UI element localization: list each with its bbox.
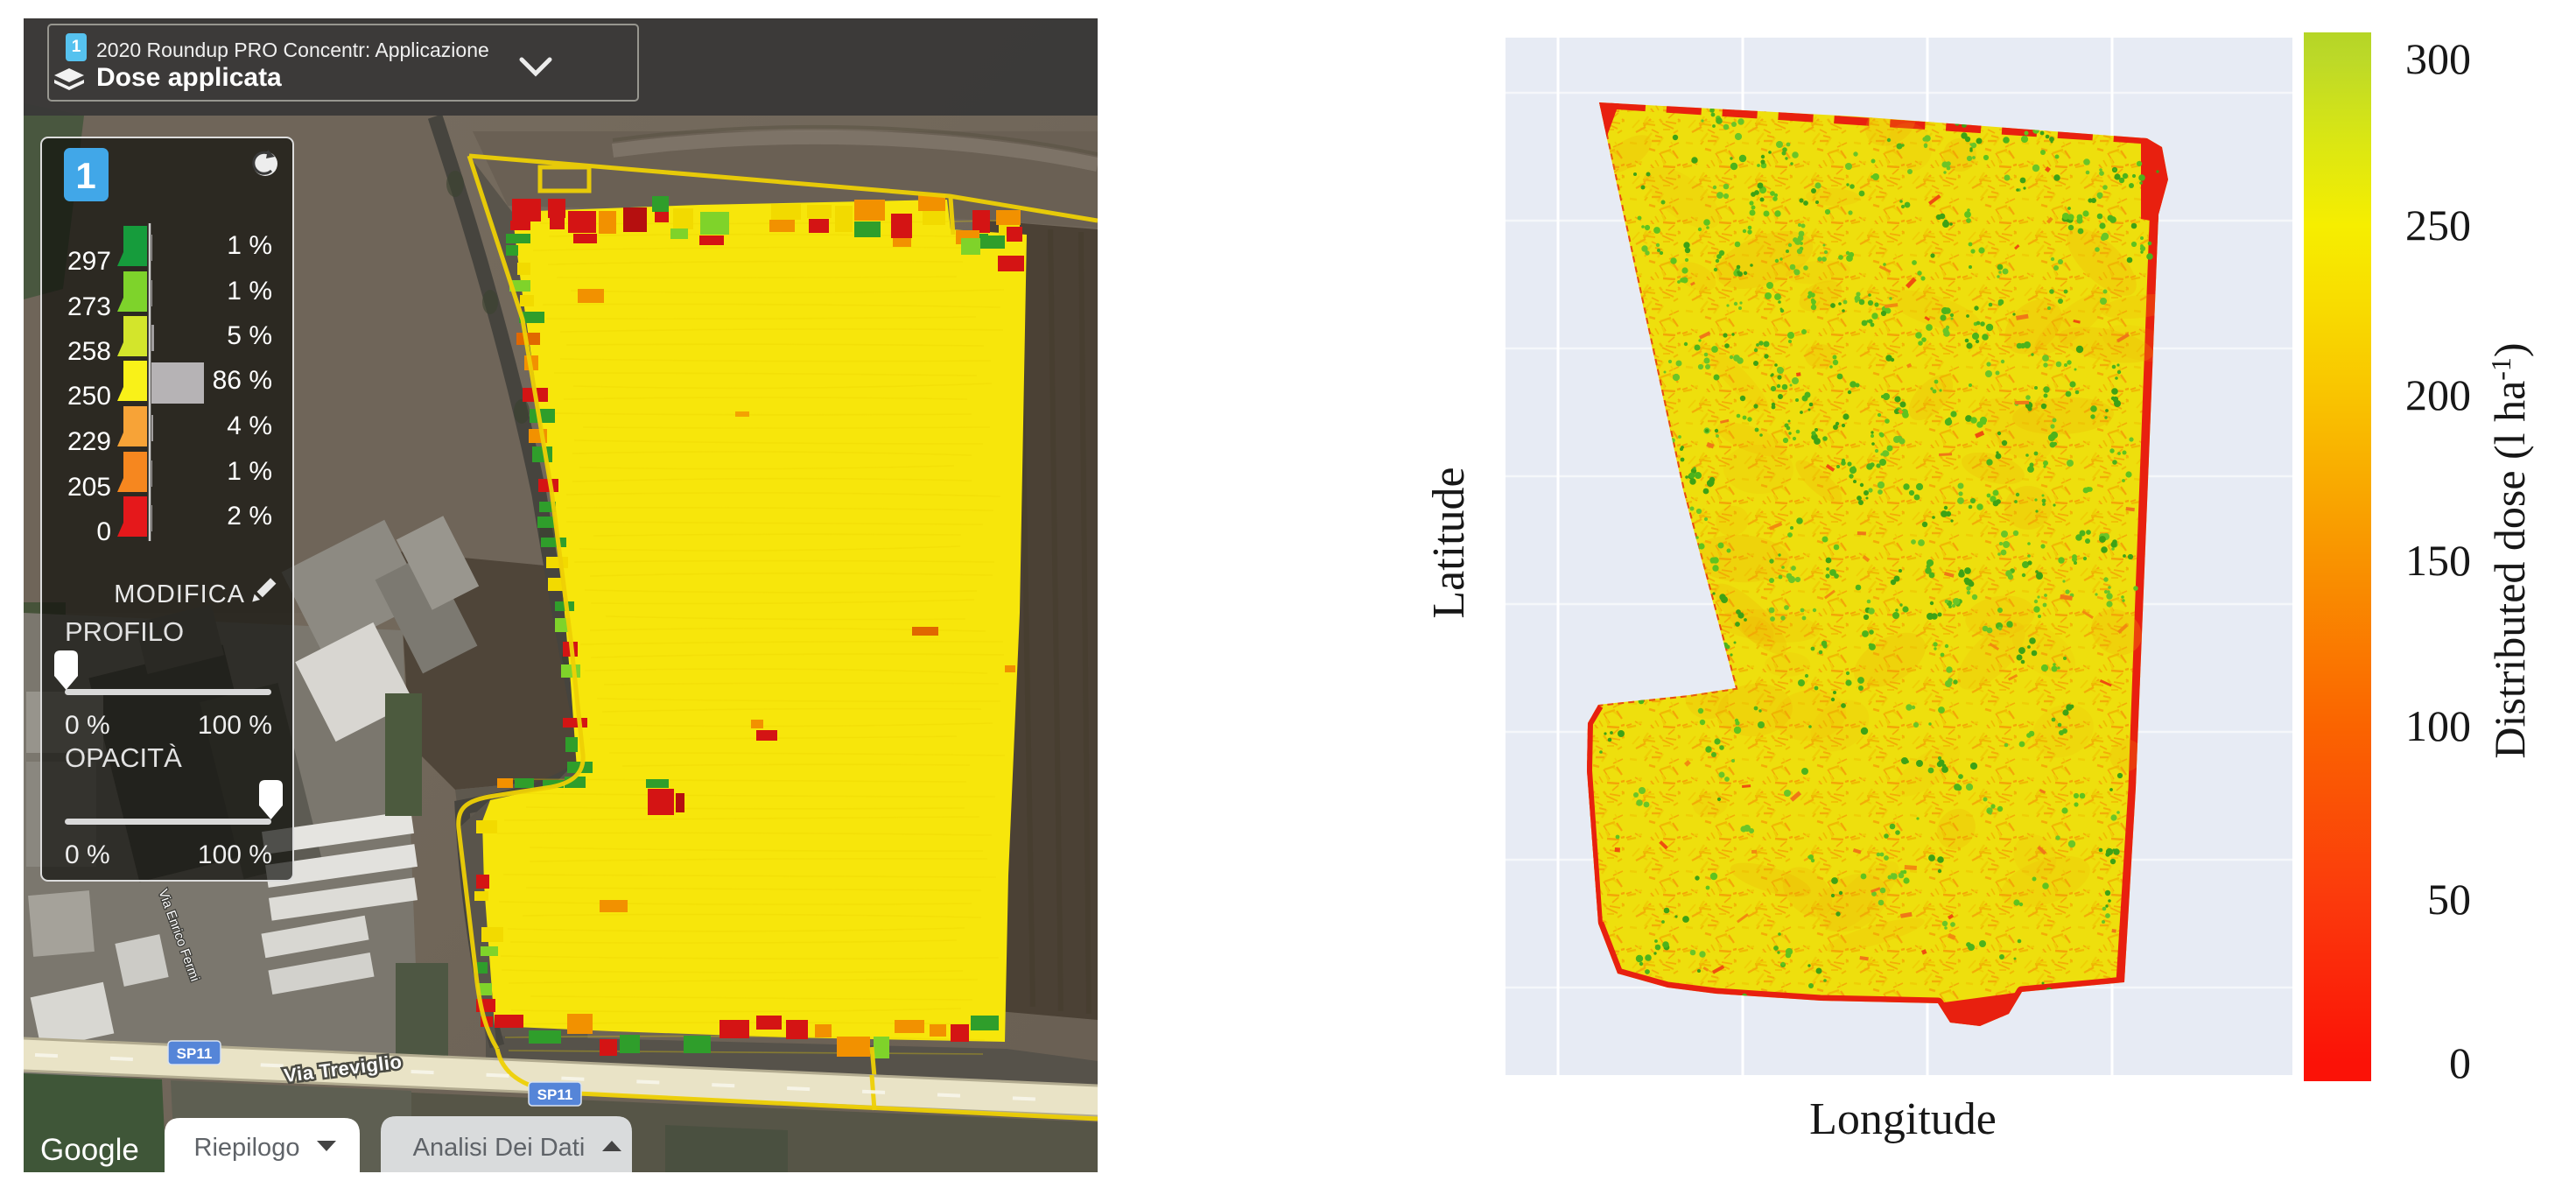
svg-text:Latitude: Latitude xyxy=(1424,467,1474,618)
svg-text:Distributed dose (l ha-1): Distributed dose (l ha-1) xyxy=(2485,342,2534,758)
svg-text:300: 300 xyxy=(2405,34,2471,83)
svg-text:150: 150 xyxy=(2405,536,2471,585)
svg-text:100: 100 xyxy=(2405,701,2471,750)
svg-text:50: 50 xyxy=(2427,875,2471,924)
svg-text:250: 250 xyxy=(2405,200,2471,250)
svg-text:200: 200 xyxy=(2405,370,2471,419)
svg-text:Longitude: Longitude xyxy=(1809,1094,1997,1144)
svg-text:0: 0 xyxy=(2449,1038,2471,1087)
